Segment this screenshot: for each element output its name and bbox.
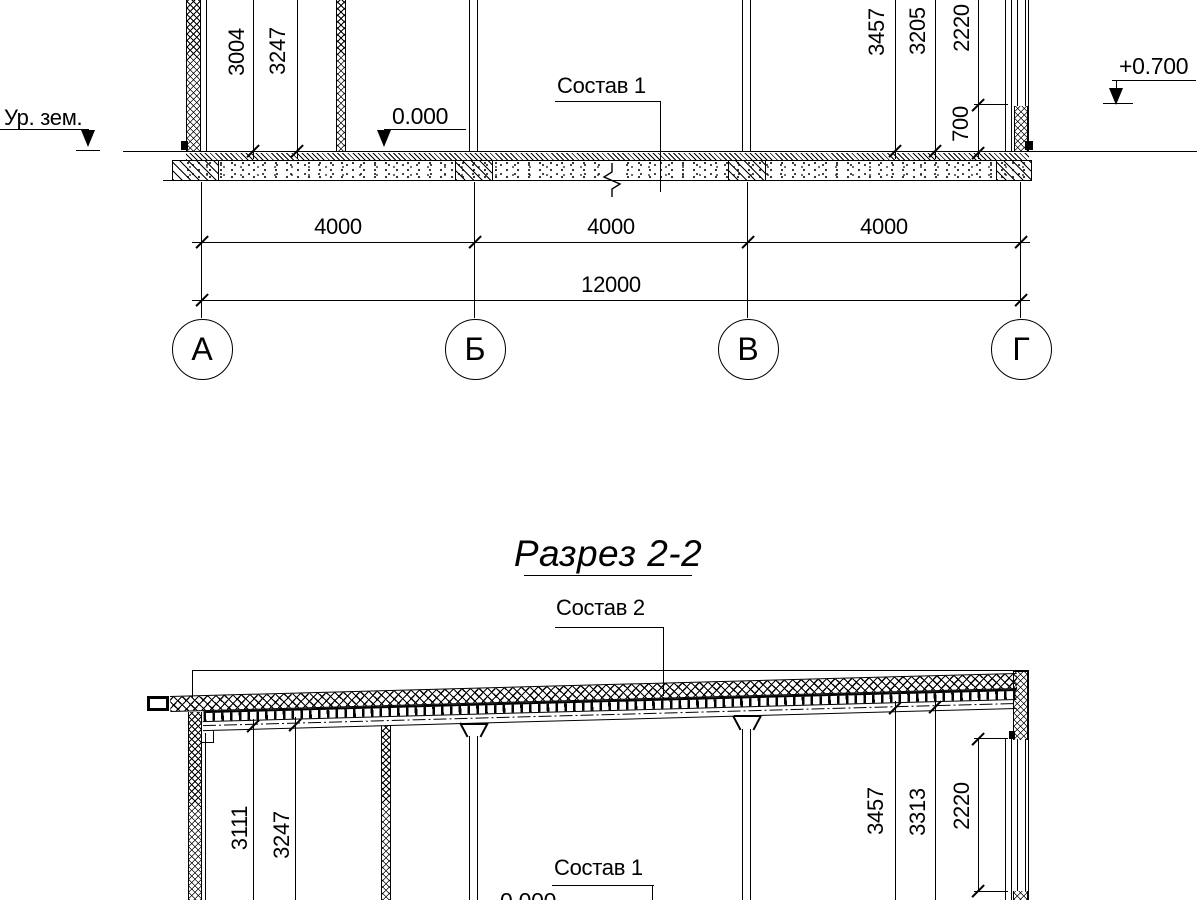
axis-a-letter: А [191,331,212,368]
window-mullion-1-bottom [1017,739,1018,891]
window-mullion-2-bottom [1025,739,1026,891]
column-b-left [469,0,470,152]
axis-g-letter: Г [1012,331,1029,368]
window-frame-line-bottom [1011,739,1012,900]
capital-b-bar [461,723,487,725]
window-frame-line [1011,0,1012,152]
ground-line-right [1029,151,1197,153]
span-1-label: 4000 [314,216,362,238]
layer-callout-2: Состав 2 [556,597,645,619]
cornice-box [147,696,169,711]
window-mullion-2 [1025,0,1026,106]
column-v-right-bottom [750,729,751,900]
axis-v-line [747,182,748,318]
dim-chain-line [192,242,1030,244]
dimline-2220 [978,0,979,159]
section-title-underline [524,575,692,577]
layer-callout-1-leader [660,101,661,192]
axis-bubble-b: Б [445,319,506,380]
ground-line-left [123,151,186,153]
dimline-3205 [935,0,936,159]
layer-callout-1-underline [555,101,661,102]
dim-3205-label: 3205 [907,7,929,55]
parapet-far-edge-line [192,670,1029,671]
foundation-g [996,160,1032,181]
flashing-parapet [1009,731,1015,739]
axis-b-letter: Б [465,331,486,368]
wall-axis-a [186,0,201,152]
floor-bottom-line [163,180,1032,181]
ground-level-base-tick [76,150,100,152]
drawing-sheet: Ур. зем. 0.000 +0.700 Состав 1 [0,0,1200,900]
dim-3247-label: 3247 [267,27,289,75]
total-dim-label: 12000 [581,274,641,296]
section-title: Разрез 2-2 [514,533,702,575]
layer-callout-1: Состав 1 [557,75,646,97]
sill-masonry [1013,891,1028,900]
wall-axis-a-bottom [188,712,202,900]
window-inner-line-bottom [1005,739,1006,900]
dim-3313-label: 3313 [907,788,929,836]
column-v-left [742,0,743,152]
roof-assembly [170,673,1018,741]
column-b-left-bottom [469,736,470,900]
wall-g-outer-face-bottom [1028,671,1029,900]
break-symbol-icon [600,163,624,197]
dim-700-label: 700 [950,106,972,142]
foundation-b [455,160,493,181]
axis-bubble-g: Г [991,319,1052,380]
parapet-masonry [1013,671,1028,740]
elev-top-leader [1112,80,1196,81]
flashing-right [1025,141,1033,150]
window-inner-line [1005,0,1006,152]
foundation-a [172,160,219,181]
flashing-left [181,141,188,150]
parapet-edge-connector [192,670,193,698]
dim-3457-b-label: 3457 [865,787,887,835]
column-v-right [750,0,751,152]
layer-callout-2-underline [555,627,664,628]
dim-2220-label: 2220 [951,4,973,52]
axis-bubble-v: В [718,319,779,380]
wall-a-finish-line-bottom [205,733,206,900]
wall-a-finish-line [206,0,207,152]
wall-g-outer-face [1028,0,1029,152]
dimline-3247 [297,0,298,159]
axis-bubble-a: А [172,319,233,380]
elev-zero-leader [384,129,466,130]
elev-top-label: +0.700 [1119,55,1188,78]
dim-total-line [192,300,1030,302]
dim-3111-label: 3111 [229,806,251,850]
corbel-horizontal [201,742,214,743]
elev-zero-arrow-icon [377,130,391,147]
ground-level-arrow-icon [81,130,95,147]
dimline-3457 [895,0,896,159]
capital-v-bar [734,715,760,717]
span-3-label: 4000 [860,216,908,238]
partition-pier [336,0,346,152]
ground-level-leader [0,129,89,130]
dimline-2220-b [978,739,979,892]
column-v-left-bottom [742,729,743,900]
ground-level-label: Ур. зем. [4,107,82,129]
dim-3247-b-label: 3247 [271,811,293,859]
dimline-3004 [253,0,254,159]
span-2-label: 4000 [587,216,635,238]
elev-zero-b-label: 0.000 [500,890,556,900]
axis-v-letter: В [737,331,758,368]
dimline-3313 [935,700,936,900]
layer-callout-1b-leader [652,885,653,900]
foundation-v [728,160,766,181]
dimline-3111 [253,719,254,900]
column-b-right-bottom [477,736,478,900]
floor-screed-band [186,153,1029,162]
dimline-3457-b [895,701,896,900]
layer-callout-1b-underline [552,885,654,886]
elev-zero-label: 0.000 [392,105,448,128]
window-mullion-1 [1017,0,1018,106]
dim-3457-label: 3457 [866,8,888,56]
axis-b-line [474,182,475,318]
layer-callout-1b: Состав 1 [554,857,643,879]
dimline-3247-b [295,717,296,900]
partition-pier-bottom [381,726,391,900]
column-b-right [477,0,478,152]
elev-top-base-tick [1103,103,1133,105]
dim-2220-b-label: 2220 [951,782,973,830]
dim-3004-label: 3004 [226,28,248,76]
